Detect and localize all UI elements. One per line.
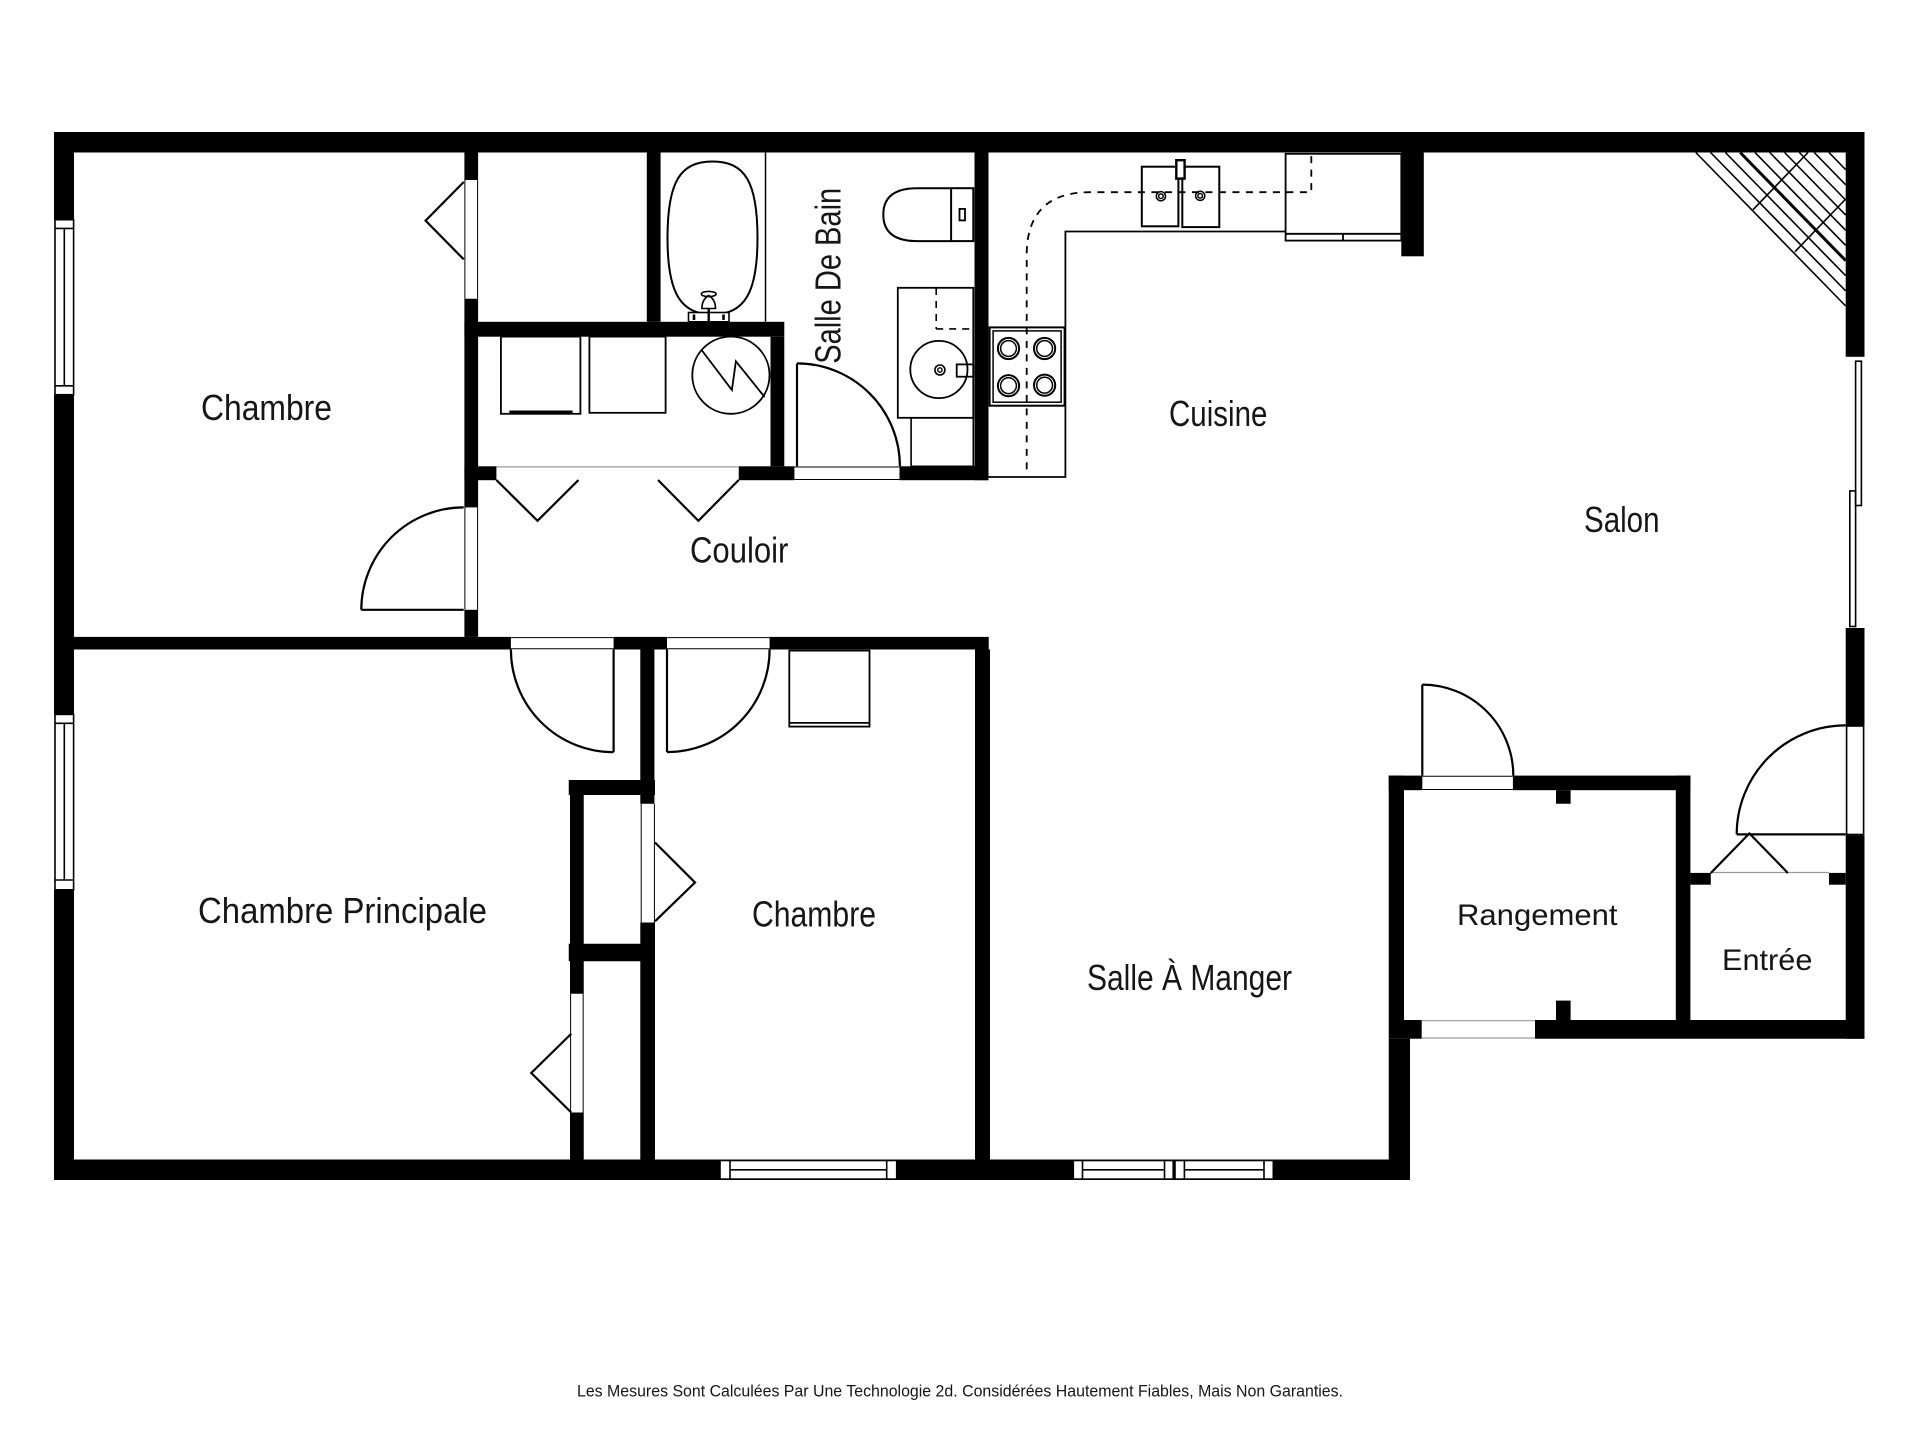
svg-text:Entrée: Entrée: [1722, 944, 1812, 977]
svg-text:Couloir: Couloir: [690, 530, 788, 571]
svg-text:Chambre: Chambre: [201, 387, 332, 428]
svg-text:Les Mesures Sont Calculées Par: Les Mesures Sont Calculées Par Une Techn…: [577, 1382, 1343, 1401]
svg-text:Chambre Principale: Chambre Principale: [198, 890, 487, 931]
svg-text:Chambre: Chambre: [752, 894, 876, 935]
svg-text:Salon: Salon: [1584, 499, 1660, 540]
svg-text:Salle À Manger: Salle À Manger: [1087, 957, 1292, 998]
svg-text:Salle De Bain: Salle De Bain: [808, 188, 849, 364]
svg-text:Rangement: Rangement: [1457, 899, 1618, 932]
svg-text:Cuisine: Cuisine: [1169, 393, 1267, 434]
